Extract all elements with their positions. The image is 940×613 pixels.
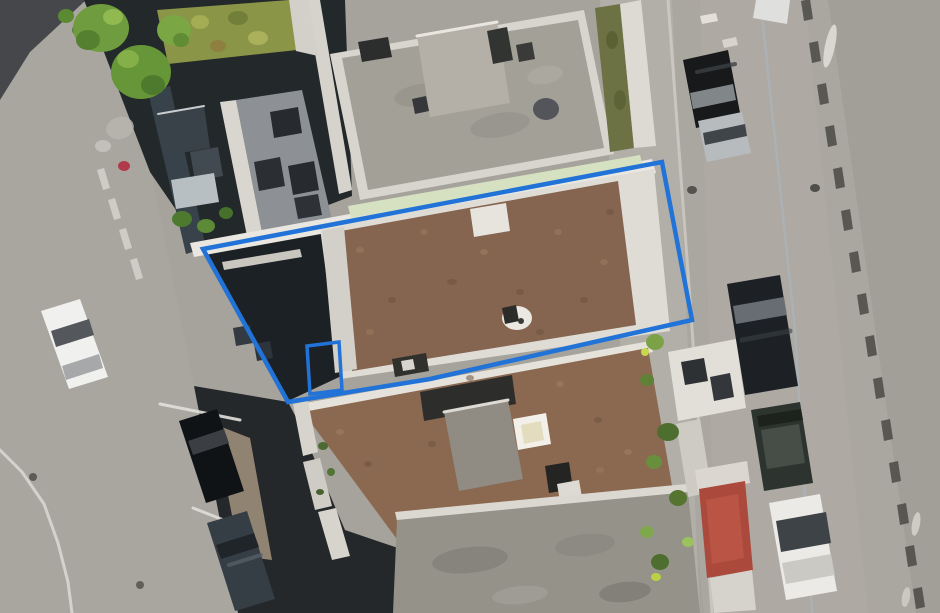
map-canvas[interactable] [0, 0, 940, 613]
tree-2-light [117, 50, 139, 68]
garden-red-object [118, 161, 130, 171]
bush-right-4 [646, 455, 662, 469]
moss-brown-patch [210, 40, 226, 52]
moss-light-2 [248, 31, 268, 45]
hedge-dark-1 [606, 31, 618, 49]
brown-roof-speckle-3 [420, 229, 428, 235]
brown-roof-speckle-8 [580, 297, 588, 303]
lower-roof-speckle-1 [336, 429, 344, 435]
parcel-roof-vent-dot [518, 318, 524, 324]
tree-3-shade [173, 33, 189, 47]
bush-right-3 [657, 423, 679, 441]
bush-right-2 [640, 374, 654, 386]
bush-right-6 [640, 526, 654, 538]
manhole-left-2 [136, 581, 144, 589]
bush-right-5 [669, 490, 687, 506]
court-green-3 [316, 489, 324, 495]
court-green-2 [327, 468, 335, 476]
lower-roof-speckle-6 [466, 375, 474, 381]
parcel-roof-white-notch [470, 203, 510, 237]
brown-roof-speckle-7 [554, 229, 562, 235]
brown-roof-speckle-6 [516, 289, 524, 295]
garden-bush-3 [219, 207, 233, 219]
car-suv-right-roof [761, 424, 805, 469]
wing-solar-panel-4 [294, 194, 322, 219]
tree-1-shade [76, 30, 100, 50]
garden-bush-1 [172, 211, 192, 227]
top-roof-object-4 [412, 96, 429, 114]
red-balcony-inner [706, 494, 744, 564]
brown-roof-speckle-12 [606, 209, 614, 215]
hedge-dark-2 [614, 90, 626, 110]
aerial-svg [0, 0, 940, 613]
tree-2-shade [141, 75, 165, 95]
lower-roof-speckle-7 [596, 467, 604, 473]
moss-dark-1 [228, 11, 248, 25]
manhole-right-1 [687, 186, 697, 194]
garden-light-blob-2 [95, 140, 111, 152]
lower-roof-speckle-4 [594, 417, 602, 423]
brown-roof-speckle-5 [480, 249, 488, 255]
bush-right-10 [651, 573, 661, 581]
brown-roof-speckle-10 [536, 329, 544, 335]
court-green-1 [318, 442, 328, 450]
skylight-inner [521, 421, 544, 444]
bush-right-8 [682, 537, 694, 547]
tree-small-1 [58, 9, 74, 23]
lower-roof-speckle-2 [364, 461, 372, 467]
brown-roof-speckle-11 [366, 329, 374, 335]
lower-roof-speckle-8 [428, 441, 436, 447]
brown-roof-speckle-9 [600, 259, 608, 265]
parcel-roof-vent-dark [502, 305, 519, 324]
tree-1-light [103, 9, 123, 25]
wing-solar-panel-1 [270, 107, 302, 138]
bush-right-9 [641, 348, 649, 356]
bush-right-1 [646, 334, 664, 350]
structure-window-2 [710, 373, 734, 401]
lower-roof-speckle-3 [556, 381, 564, 387]
brown-roof-speckle-4 [447, 279, 457, 285]
brown-roof-speckle-2 [388, 297, 396, 303]
wing-solar-panel-3 [288, 161, 319, 195]
brown-roof-speckle-1 [356, 247, 364, 253]
moss-light-1 [191, 15, 209, 29]
wing-solar-panel-2 [254, 157, 285, 191]
garden-bush-2 [197, 219, 215, 233]
bush-right-7 [651, 554, 669, 570]
top-roof-object-3 [516, 42, 535, 62]
parcel-roof-dark-object-white [401, 359, 415, 371]
manhole-right-2 [810, 184, 820, 192]
lower-roof-speckle-5 [624, 449, 632, 455]
top-roof-vent-disc [533, 98, 559, 120]
manhole-left-1 [29, 473, 37, 481]
structure-window-1 [681, 358, 708, 385]
